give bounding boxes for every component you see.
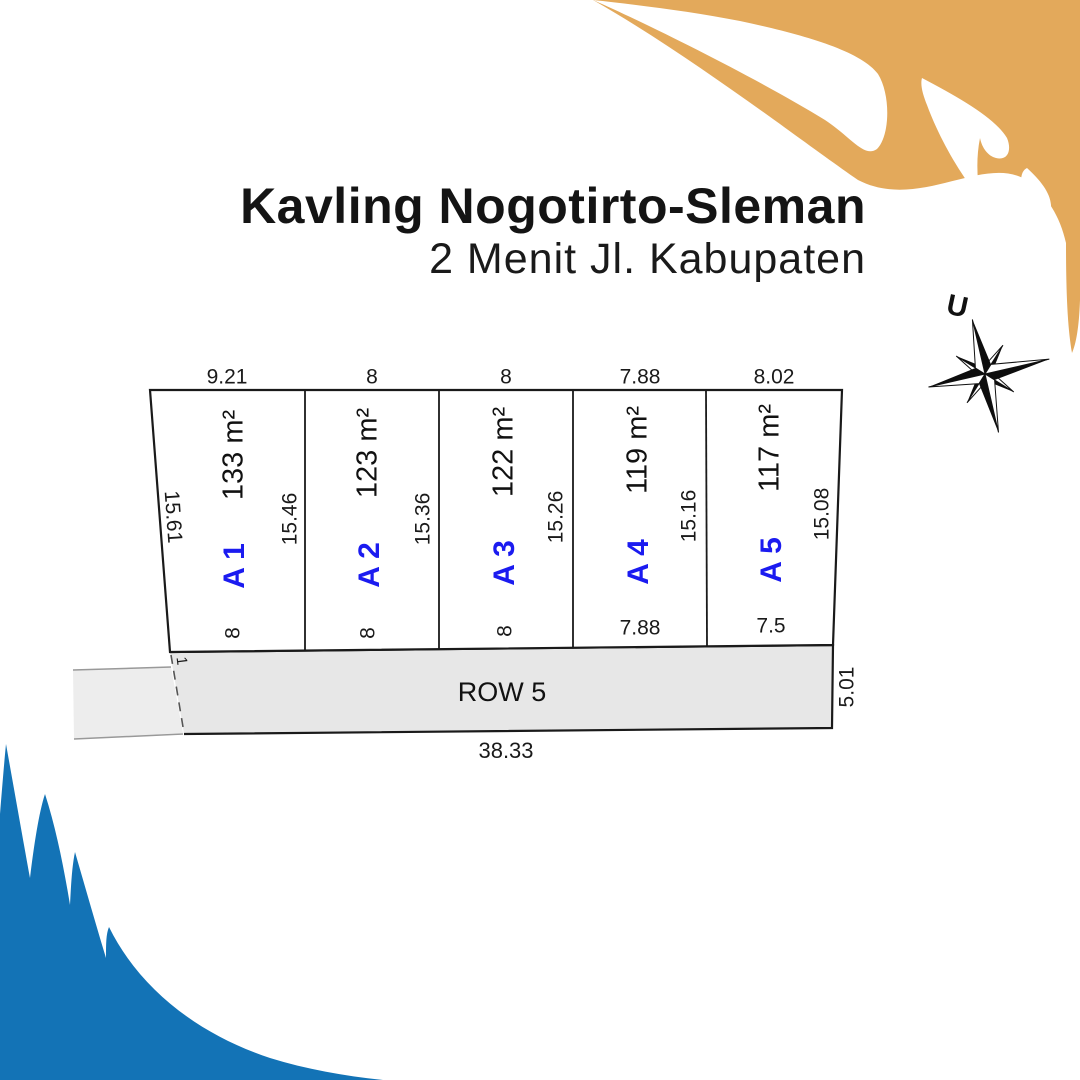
road-left-extension bbox=[73, 667, 183, 739]
plot-a2-top-dimension: 8 bbox=[366, 366, 378, 389]
plot-a4-label: A 4 bbox=[622, 539, 655, 585]
poster: Kavling Nogotirto-Sleman 2 Menit Jl. Kab… bbox=[0, 0, 1080, 1080]
plot-a2-label: A 2 bbox=[353, 542, 386, 588]
site-plan: ROW 5 38.33 5.01 1 15.61 9.21 133 m² A 1… bbox=[73, 366, 859, 763]
road-right-dimension: 5.01 bbox=[836, 667, 859, 708]
plot-a5-side-dimension: 15.08 bbox=[811, 488, 834, 541]
page-subtitle: 2 Menit Jl. Kabupaten bbox=[429, 235, 866, 283]
plot-a5-top-dimension: 8.02 bbox=[754, 366, 795, 389]
plot-a3-side-dimension: 15.26 bbox=[545, 491, 568, 544]
plot-a3-bottom-dimension: 8 bbox=[494, 625, 517, 637]
plot-a2-area: 123 m² bbox=[352, 408, 384, 499]
blue-wave-shape bbox=[0, 744, 660, 1080]
compass-rose bbox=[916, 305, 1063, 446]
plot-a1-bottom-dimension: 8 bbox=[222, 627, 245, 639]
plot-a3-label: A 3 bbox=[488, 540, 521, 586]
plot-a2-bottom-dimension: 8 bbox=[357, 627, 380, 639]
block-left-side-dimension: 15.61 bbox=[160, 490, 187, 544]
header: Kavling Nogotirto-Sleman 2 Menit Jl. Kab… bbox=[240, 178, 866, 283]
road-label: ROW 5 bbox=[458, 677, 547, 707]
plot-a5-bottom-dimension: 7.5 bbox=[756, 615, 785, 638]
road-bottom-dimension: 38.33 bbox=[478, 738, 533, 763]
plot-a1-area: 133 m² bbox=[218, 410, 250, 501]
road-left-extension-shape bbox=[73, 667, 183, 739]
plot-a2-side-dimension: 15.36 bbox=[412, 493, 435, 546]
plot-a3-area: 122 m² bbox=[488, 407, 520, 498]
blue-wave-decoration bbox=[0, 744, 660, 1080]
plot-a4-side-dimension: 15.16 bbox=[678, 490, 701, 543]
plot-a1-label: A 1 bbox=[218, 543, 251, 589]
plot-block: 15.61 9.21 133 m² A 1 15.46 8 8 123 m² A… bbox=[150, 366, 842, 652]
plot-a4-bottom-dimension: 7.88 bbox=[620, 617, 661, 640]
plot-a4-top-dimension: 7.88 bbox=[620, 366, 661, 389]
plot-a4-area: 119 m² bbox=[622, 406, 654, 494]
plot-a3-top-dimension: 8 bbox=[500, 366, 512, 389]
road: ROW 5 38.33 5.01 1 bbox=[170, 645, 859, 763]
compass-star-icon bbox=[916, 305, 1063, 446]
compass-north-label: U bbox=[944, 289, 971, 325]
plot-a1-top-dimension: 9.21 bbox=[207, 366, 248, 389]
page-title: Kavling Nogotirto-Sleman bbox=[240, 178, 866, 234]
plot-a5-label: A 5 bbox=[755, 537, 788, 583]
plot-divider-4 bbox=[706, 390, 707, 646]
orange-wave-decoration bbox=[593, 0, 1080, 353]
plot-a1-side-dimension: 15.46 bbox=[279, 493, 302, 546]
plot-a5-area: 117 m² bbox=[754, 404, 786, 492]
poster-canvas: Kavling Nogotirto-Sleman 2 Menit Jl. Kab… bbox=[0, 0, 1080, 1080]
